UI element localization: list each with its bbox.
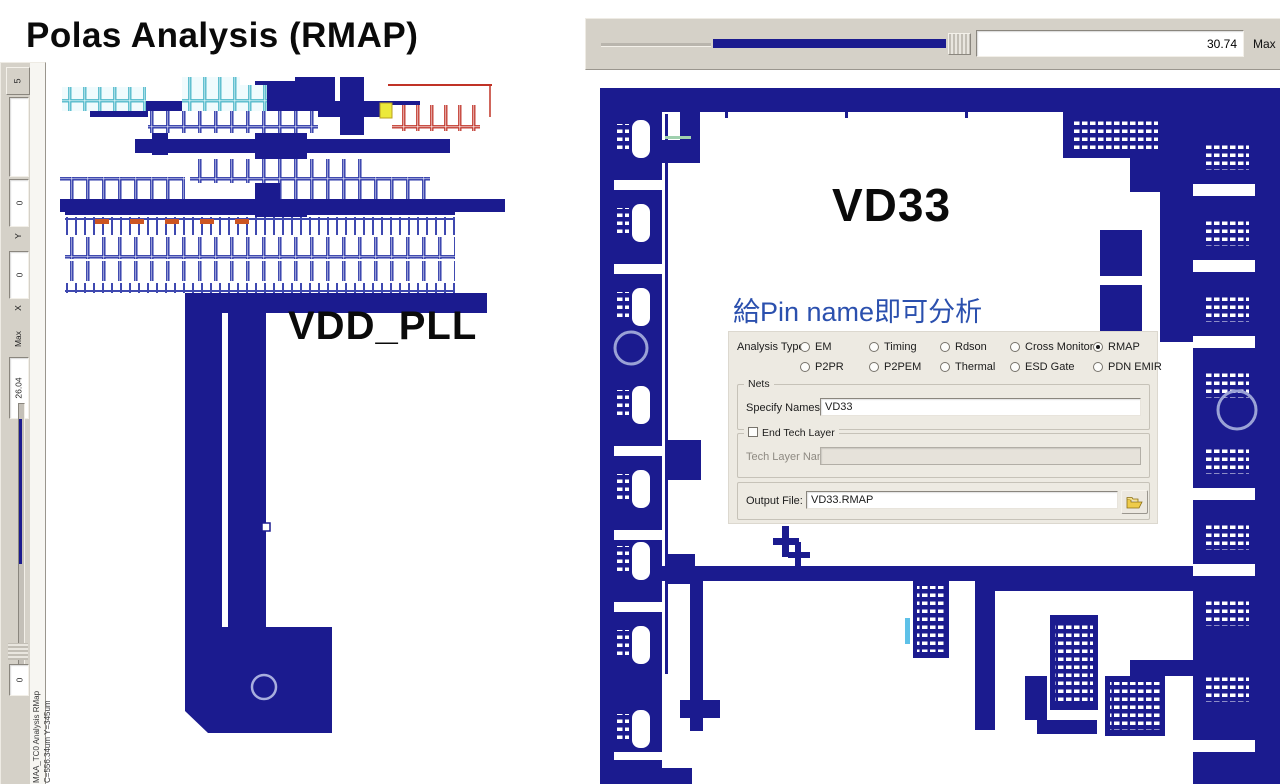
radio-cross-monitor-label: Cross Monitor <box>1025 341 1093 353</box>
radio-rmap-label: RMAP <box>1108 341 1140 353</box>
radio-thermal[interactable] <box>940 362 950 372</box>
radio-pdn-emir[interactable] <box>1093 362 1103 372</box>
end-tech-layer-checkbox[interactable] <box>748 427 758 437</box>
left-max-label: Max <box>9 325 27 353</box>
net-label-vd33: VD33 <box>832 178 951 232</box>
radio-em[interactable] <box>800 342 810 352</box>
specify-names-label: Specify Names: <box>746 402 823 414</box>
x-coordinate-label: X <box>9 300 27 316</box>
y-coordinate-label: Y <box>9 228 27 244</box>
left-slider-handle[interactable] <box>8 643 28 660</box>
nets-group-label: Nets <box>744 378 774 390</box>
output-file-input[interactable] <box>806 491 1118 509</box>
radio-p2pem-label: P2PEM <box>884 361 921 373</box>
left-slider-fill <box>19 419 22 564</box>
annotation-text: 給Pin name即可分析 <box>733 290 982 329</box>
analysis-dialog: Analysis Type EM Timing Rdson Cross Moni… <box>729 332 1157 523</box>
fit-button-glyph: 5 <box>13 78 23 83</box>
page-title: Polas Analysis (RMAP) <box>26 16 418 56</box>
radio-cross-monitor[interactable] <box>1010 342 1020 352</box>
specify-names-input[interactable] <box>820 398 1141 416</box>
right-viewer-toolbar: Max <box>585 18 1280 70</box>
net-label-vdd-pll: VDD_PLL <box>288 304 477 349</box>
right-slider-fill <box>713 39 946 48</box>
radio-esd-gate-label: ESD Gate <box>1025 361 1075 373</box>
probe-marker-square <box>262 523 270 531</box>
right-slider-groove[interactable] <box>601 43 711 47</box>
radio-em-label: EM <box>815 341 832 353</box>
left-max-value: 26.04 <box>14 377 24 398</box>
left-slider-value: 0 <box>14 678 24 683</box>
right-slider-handle[interactable] <box>948 33 971 55</box>
cyan-tick <box>905 618 910 644</box>
radio-rmap[interactable] <box>1093 342 1103 352</box>
radio-pdn-emir-label: PDN EMIR <box>1108 361 1162 373</box>
radio-p2pr[interactable] <box>800 362 810 372</box>
left-toolbar-empty-field[interactable] <box>9 97 29 177</box>
browse-output-file-button[interactable] <box>1121 490 1148 514</box>
end-tech-layer-group: End Tech Layer Tech Layer Name: <box>737 433 1150 478</box>
radio-p2pr-label: P2PR <box>815 361 844 373</box>
radio-rdson[interactable] <box>940 342 950 352</box>
slide: Polas Analysis (RMAP) 5 0 Y 0 X Max 26.0… <box>0 0 1280 784</box>
radio-esd-gate[interactable] <box>1010 362 1020 372</box>
left-slider-value-field[interactable]: 0 <box>9 664 29 696</box>
y-coordinate-field[interactable]: 0 <box>9 179 29 227</box>
chip-layout-left <box>40 75 520 784</box>
radio-timing[interactable] <box>869 342 879 352</box>
radio-thermal-label: Thermal <box>955 361 995 373</box>
output-file-group: Output File: <box>737 482 1150 520</box>
output-file-label: Output File: <box>746 495 803 507</box>
right-max-label: Max <box>1253 37 1276 51</box>
green-tick <box>665 136 691 139</box>
radio-timing-label: Timing <box>884 341 917 353</box>
nets-group: Nets Specify Names: <box>737 384 1150 430</box>
radio-rdson-label: Rdson <box>955 341 987 353</box>
fit-button[interactable]: 5 <box>6 67 30 95</box>
x-coordinate-value: 0 <box>14 273 24 278</box>
analysis-type-label: Analysis Type <box>737 341 805 353</box>
tech-layer-name-input[interactable] <box>820 447 1141 465</box>
open-folder-icon <box>1126 496 1143 509</box>
x-coordinate-field[interactable]: 0 <box>9 251 29 299</box>
y-coordinate-value: 0 <box>14 201 24 206</box>
end-tech-layer-label: End Tech Layer <box>762 427 835 439</box>
radio-p2pem[interactable] <box>869 362 879 372</box>
end-tech-layer-legend: End Tech Layer <box>744 427 839 439</box>
right-max-value-field[interactable] <box>976 30 1244 57</box>
